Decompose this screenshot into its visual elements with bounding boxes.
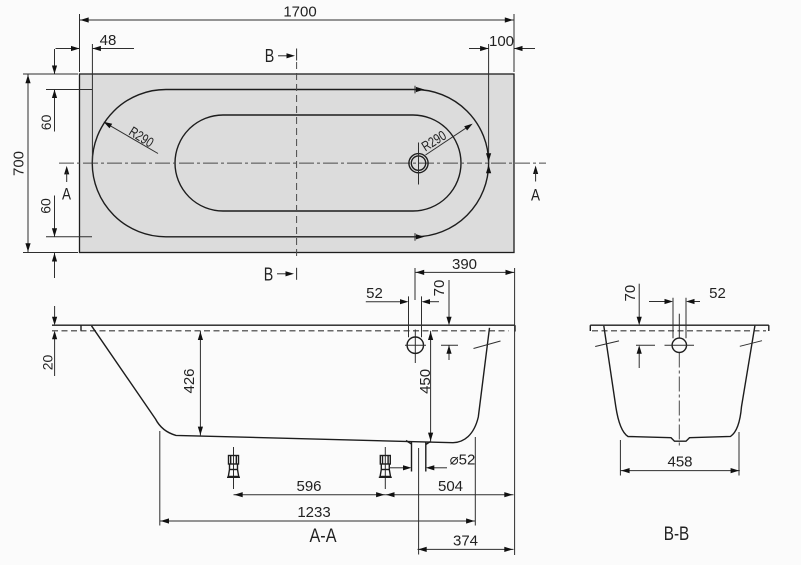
svg-text:700: 700: [11, 151, 28, 176]
svg-text:⌀52: ⌀52: [450, 452, 476, 469]
svg-text:1233: 1233: [297, 504, 330, 521]
svg-text:B-B: B-B: [664, 523, 690, 545]
svg-text:70: 70: [431, 280, 448, 297]
svg-text:52: 52: [366, 285, 383, 302]
svg-text:20: 20: [40, 355, 56, 371]
svg-text:100: 100: [489, 33, 514, 50]
svg-text:426: 426: [181, 368, 198, 393]
svg-text:B: B: [265, 46, 275, 66]
svg-text:48: 48: [100, 32, 117, 49]
svg-text:458: 458: [667, 454, 692, 471]
svg-text:450: 450: [417, 369, 434, 394]
svg-text:504: 504: [438, 478, 463, 495]
svg-text:A: A: [62, 185, 72, 204]
svg-text:1700: 1700: [283, 4, 316, 21]
svg-text:60: 60: [38, 198, 54, 214]
svg-text:60: 60: [38, 114, 54, 130]
svg-text:A: A: [531, 186, 541, 205]
svg-text:A-A: A-A: [310, 525, 337, 547]
svg-text:B: B: [264, 265, 274, 285]
svg-text:70: 70: [622, 285, 639, 302]
svg-text:596: 596: [296, 478, 321, 495]
svg-text:52: 52: [709, 285, 726, 302]
svg-text:374: 374: [453, 533, 478, 550]
svg-text:390: 390: [452, 256, 477, 273]
